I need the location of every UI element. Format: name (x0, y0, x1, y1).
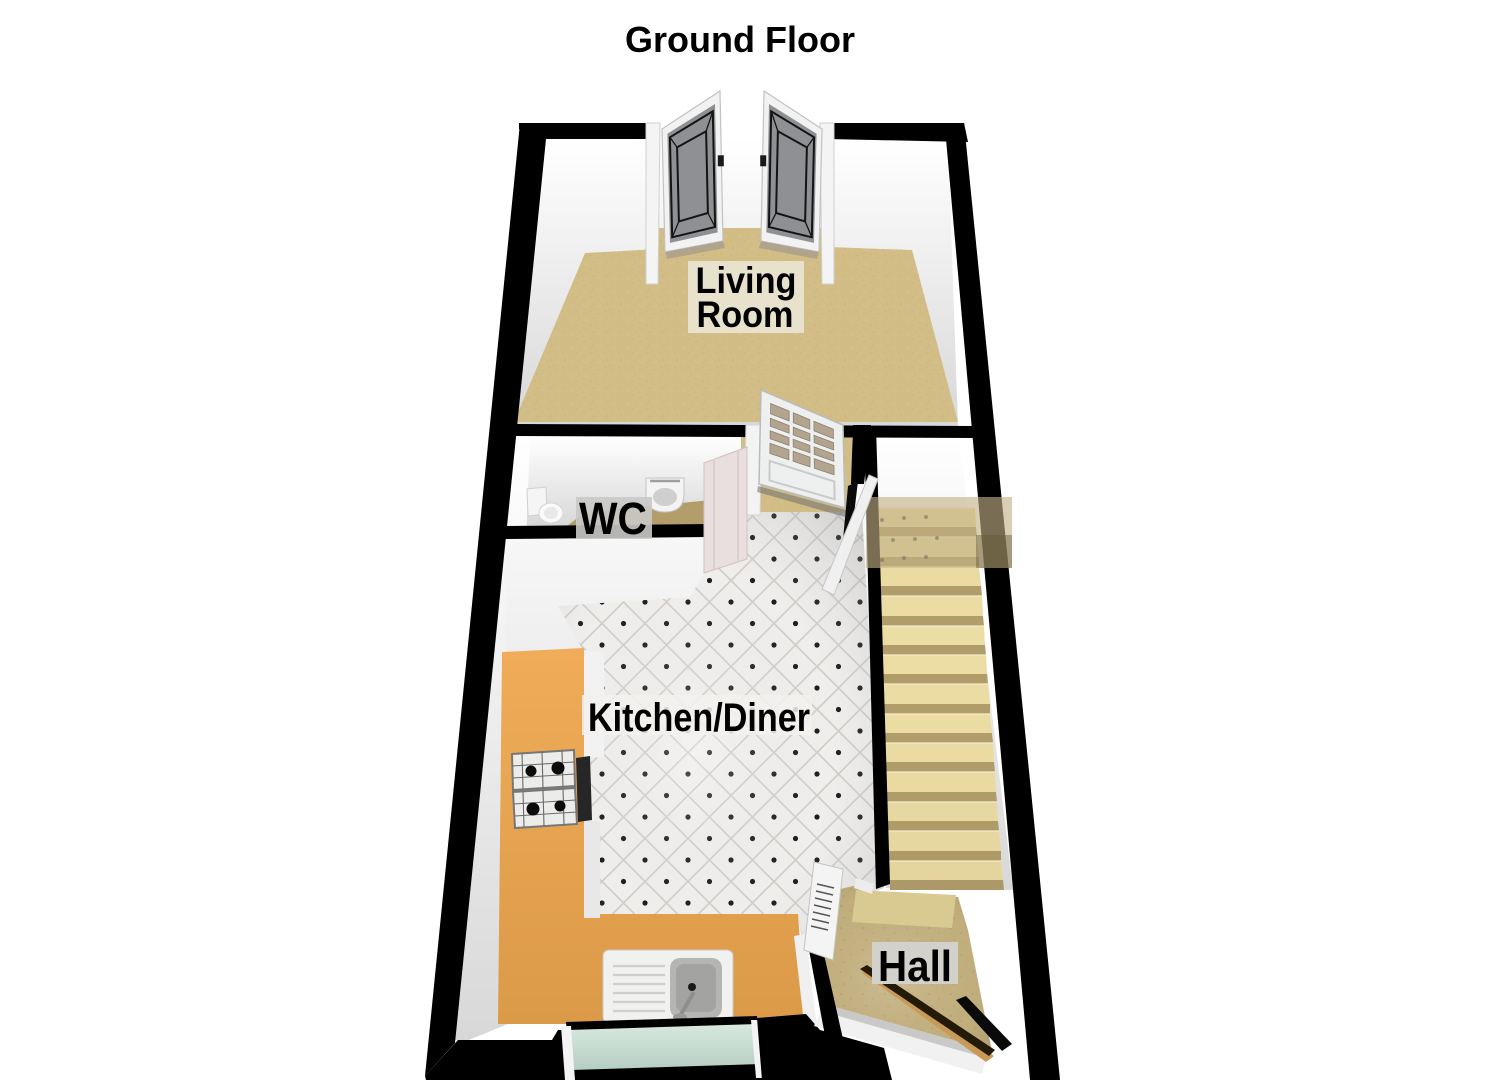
svg-text:Kitchen/Diner: Kitchen/Diner (588, 696, 810, 740)
svg-text:WC: WC (579, 493, 647, 544)
svg-text:Hall: Hall (878, 942, 952, 991)
svg-text:Room: Room (697, 294, 794, 335)
svg-text:Ground Floor: Ground Floor (625, 19, 855, 60)
